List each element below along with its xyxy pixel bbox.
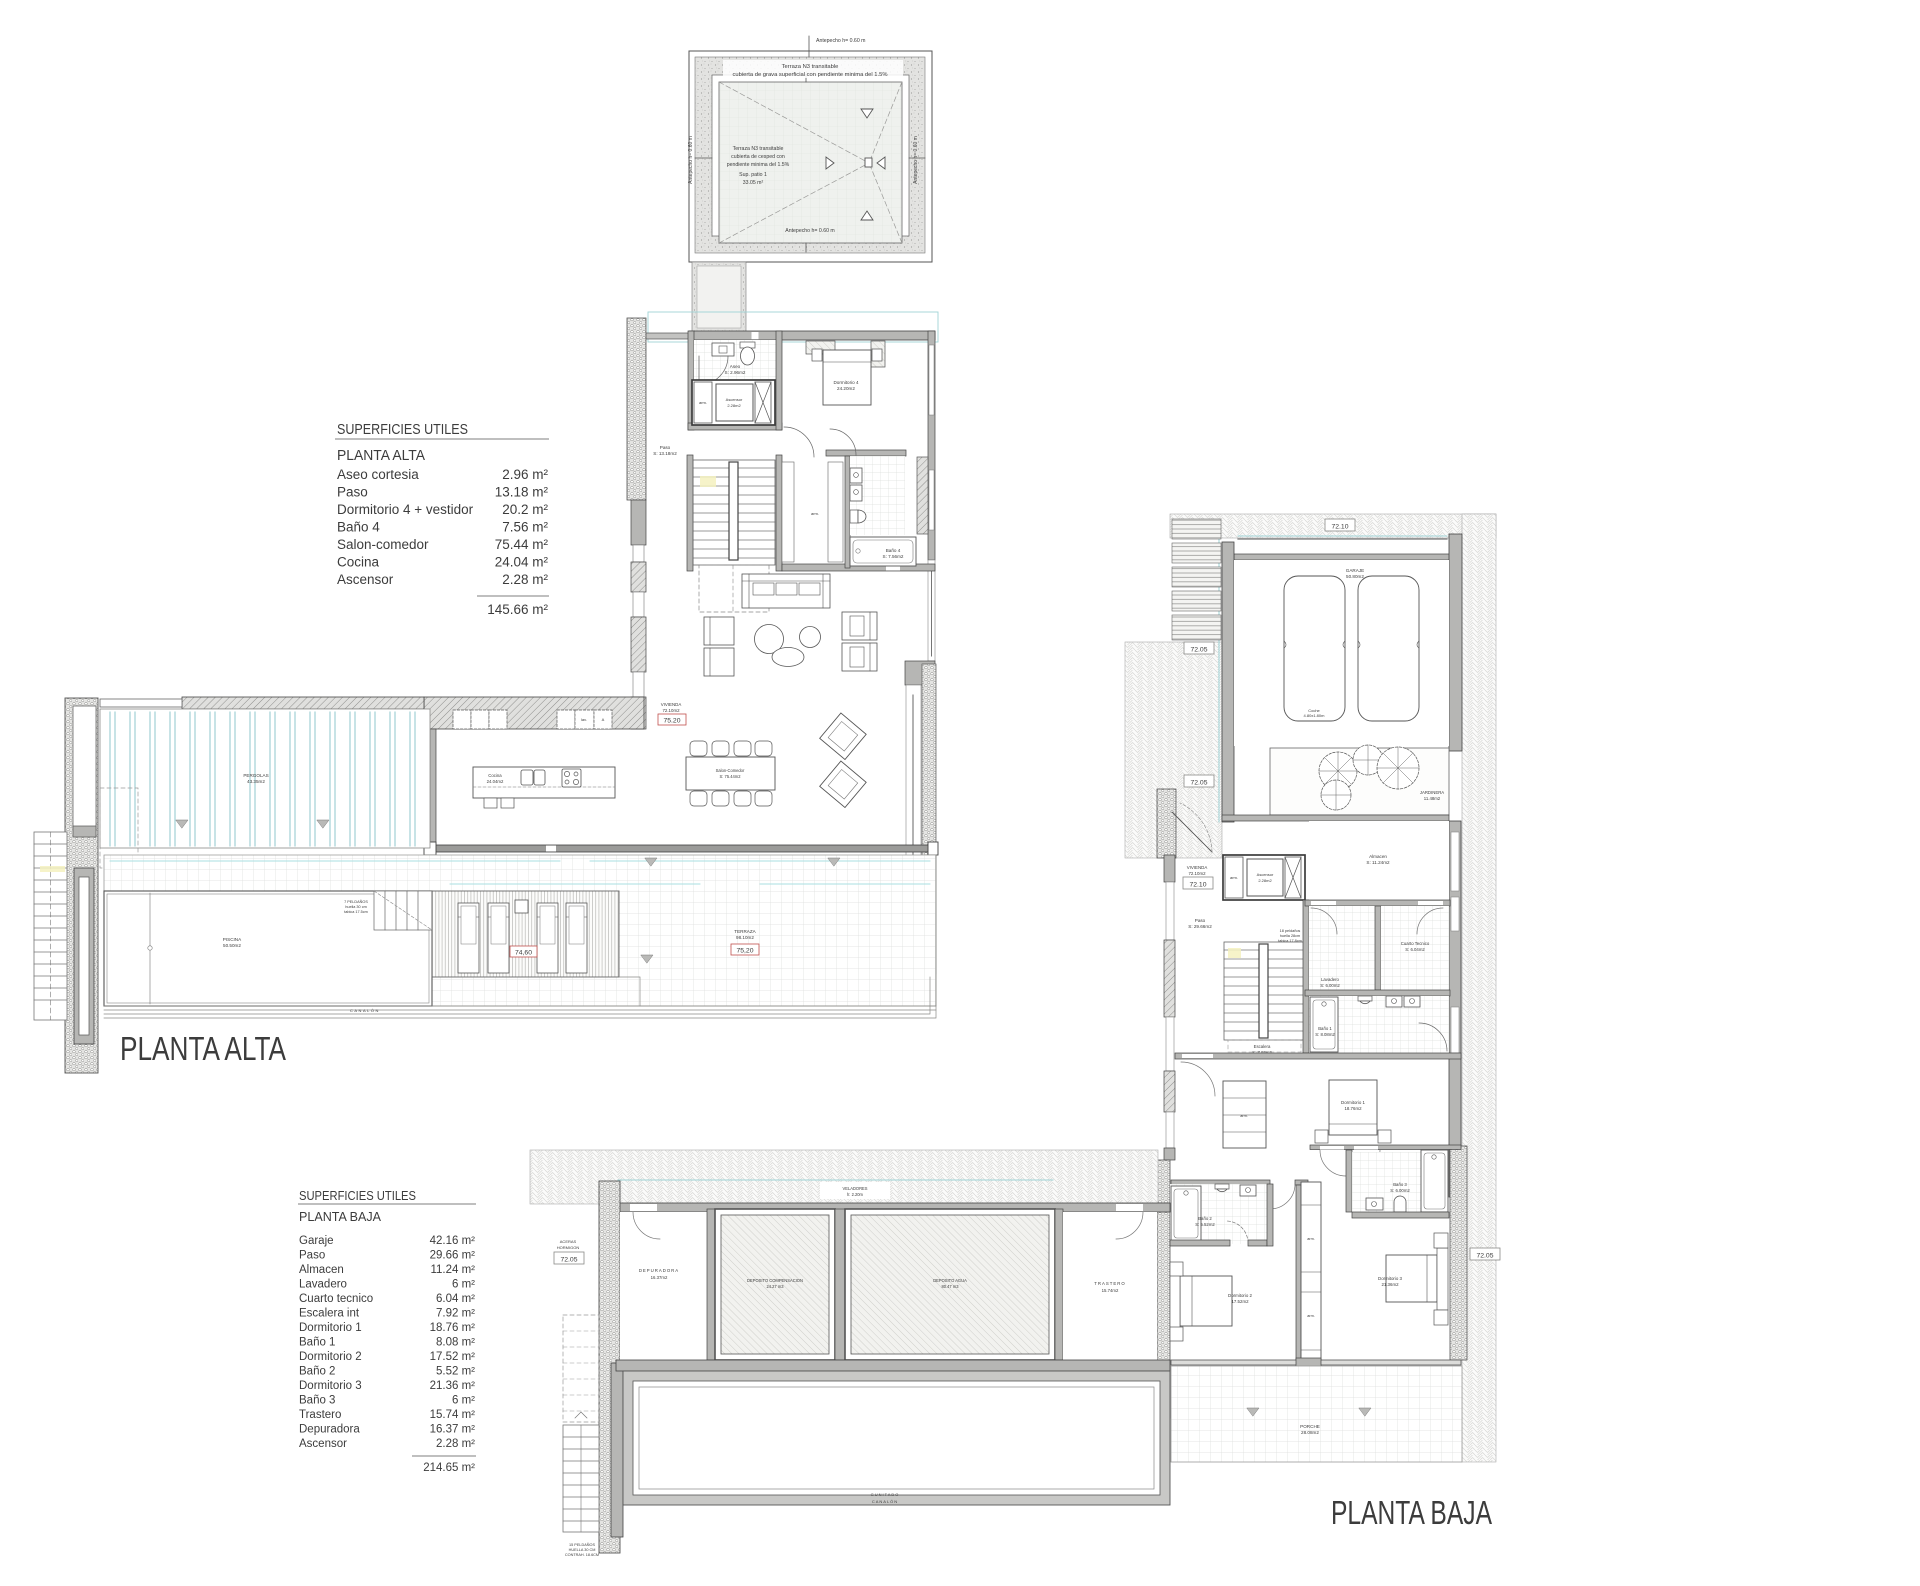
- svg-text:75,20: 75,20: [736, 948, 753, 955]
- svg-text:Baño 3: Baño 3: [1393, 1182, 1407, 1187]
- svg-text:Dormitorio 3: Dormitorio 3: [299, 1380, 362, 1392]
- svg-text:29.66 m²: 29.66 m²: [430, 1250, 476, 1262]
- svg-text:Cuarto tecnico: Cuarto tecnico: [299, 1293, 373, 1305]
- svg-text:15 PELDAÑOS: 15 PELDAÑOS: [569, 1542, 595, 1547]
- svg-text:DEPOSITO COMPENSACION: DEPOSITO COMPENSACION: [747, 1278, 803, 1283]
- svg-text:80.47 m3: 80.47 m3: [941, 1284, 959, 1289]
- svg-text:TERRAZA: TERRAZA: [734, 929, 756, 934]
- svg-text:18.76m2: 18.76m2: [1344, 1106, 1362, 1111]
- svg-text:72.05: 72.05: [1476, 1253, 1493, 1260]
- svg-text:Dormitorio 3: Dormitorio 3: [1378, 1276, 1402, 1281]
- svg-text:2.28m2: 2.28m2: [1258, 878, 1272, 883]
- svg-text:DEPOSITO AGUA: DEPOSITO AGUA: [933, 1278, 967, 1283]
- svg-text:15.74 m²: 15.74 m²: [430, 1409, 476, 1421]
- svg-text:Antepecho h= 0.60 m: Antepecho h= 0.60 m: [913, 136, 919, 184]
- svg-text:4.80x1.80m: 4.80x1.80m: [1304, 713, 1326, 718]
- svg-text:Garaje: Garaje: [299, 1235, 334, 1247]
- svg-text:Cocina: Cocina: [488, 773, 502, 778]
- svg-text:PLANTA ALTA: PLANTA ALTA: [120, 1030, 286, 1067]
- svg-text:Terraza N3 transitable: Terraza N3 transitable: [782, 64, 839, 70]
- svg-text:S: 6.00m2: S: 6.00m2: [1390, 1188, 1410, 1193]
- svg-text:15.74m2: 15.74m2: [1102, 1288, 1119, 1293]
- svg-text:18 peldaños: 18 peldaños: [1280, 929, 1301, 933]
- svg-text:Baño 4: Baño 4: [886, 548, 901, 553]
- svg-text:Antepecho h= 0.60 m: Antepecho h= 0.60 m: [785, 228, 834, 234]
- svg-text:17.52 m²: 17.52 m²: [430, 1351, 476, 1363]
- svg-text:2.28m2: 2.28m2: [727, 403, 741, 408]
- svg-text:2.28 m²: 2.28 m²: [502, 572, 548, 587]
- svg-text:Almacen: Almacen: [1369, 854, 1387, 859]
- svg-text:Trastero: Trastero: [299, 1409, 341, 1421]
- svg-text:SUPERFICIES UTILES: SUPERFICIES UTILES: [337, 422, 468, 438]
- svg-text:Cocina: Cocina: [337, 555, 380, 570]
- svg-text:20.2 m²: 20.2 m²: [502, 502, 548, 517]
- svg-text:Lavadero: Lavadero: [1321, 977, 1340, 982]
- svg-text:VELADORES: VELADORES: [842, 1186, 867, 1191]
- svg-text:28.08m2: 28.08m2: [1301, 1430, 1319, 1435]
- svg-text:Dormitorio 4: Dormitorio 4: [833, 380, 858, 385]
- svg-text:72.05: 72.05: [1190, 780, 1207, 787]
- svg-text:Escalera int: Escalera int: [299, 1308, 360, 1320]
- svg-text:lav.: lav.: [581, 717, 587, 722]
- svg-text:8.08 m²: 8.08 m²: [436, 1337, 475, 1349]
- svg-text:Escalera: Escalera: [1254, 1044, 1271, 1049]
- svg-text:Ascensor: Ascensor: [726, 397, 743, 402]
- svg-text:21.36 m²: 21.36 m²: [430, 1380, 476, 1392]
- svg-text:6.04 m²: 6.04 m²: [436, 1293, 475, 1305]
- svg-text:18.76 m²: 18.76 m²: [430, 1322, 476, 1334]
- svg-text:Sup. patio 1: Sup. patio 1: [739, 172, 767, 178]
- svg-text:PORCHE: PORCHE: [1300, 1424, 1320, 1429]
- svg-text:pendiente minima del 1.5%: pendiente minima del 1.5%: [727, 162, 790, 168]
- svg-text:ACERAS: ACERAS: [560, 1239, 577, 1244]
- svg-text:HUELLA 30 CM: HUELLA 30 CM: [569, 1548, 596, 1552]
- svg-text:2.96 m²: 2.96 m²: [502, 467, 548, 482]
- svg-text:arm.: arm.: [1307, 1237, 1315, 1241]
- svg-text:2.28 m²: 2.28 m²: [436, 1438, 475, 1450]
- svg-text:74,60: 74,60: [515, 950, 532, 957]
- svg-text:arm.: arm.: [811, 511, 819, 516]
- svg-text:50.50m2: 50.50m2: [223, 943, 241, 948]
- svg-text:17.52m2: 17.52m2: [1231, 1299, 1249, 1304]
- svg-text:SUPERFICIES UTILES: SUPERFICIES UTILES: [299, 1189, 416, 1203]
- svg-text:24.04 m²: 24.04 m²: [495, 555, 549, 570]
- svg-text:6 m²: 6 m²: [452, 1395, 475, 1407]
- svg-text:Baño 1: Baño 1: [299, 1337, 335, 1349]
- svg-text:Dormitorio 4 + vestidor: Dormitorio 4 + vestidor: [337, 502, 474, 517]
- svg-text:cubierta de cesped con: cubierta de cesped con: [731, 154, 785, 160]
- svg-text:72.10m2: 72.10m2: [662, 708, 680, 713]
- svg-text:145.66 m²: 145.66 m²: [487, 602, 548, 617]
- svg-text:Paso: Paso: [660, 445, 671, 450]
- svg-text:S: 11.24m2: S: 11.24m2: [1366, 860, 1390, 865]
- svg-text:PISCINA: PISCINA: [223, 937, 242, 942]
- svg-text:72.10m2: 72.10m2: [1188, 871, 1206, 876]
- svg-text:Salon-comedor: Salon-comedor: [337, 537, 429, 552]
- svg-text:16.37 m²: 16.37 m²: [430, 1424, 476, 1436]
- svg-text:S: 6.04m2: S: 6.04m2: [1405, 947, 1425, 952]
- svg-text:VIVIENDA: VIVIENDA: [1187, 865, 1208, 870]
- svg-text:S: 2.96m2: S: 2.96m2: [725, 370, 746, 375]
- svg-text:S: 75.44m2: S: 75.44m2: [720, 774, 742, 779]
- svg-text:A: A: [602, 717, 605, 722]
- svg-text:Dormitorio 2: Dormitorio 2: [299, 1351, 362, 1363]
- svg-text:Dormitorio 1: Dormitorio 1: [299, 1322, 362, 1334]
- svg-text:Cuarto Tecnico: Cuarto Tecnico: [1401, 941, 1430, 946]
- svg-text:S: 5.52m2: S: 5.52m2: [1195, 1222, 1215, 1227]
- svg-text:DEPURADORA: DEPURADORA: [639, 1268, 679, 1273]
- svg-text:Baño 1: Baño 1: [1318, 1026, 1332, 1031]
- svg-text:arm.: arm.: [1230, 875, 1238, 880]
- svg-text:HORMIGON: HORMIGON: [557, 1245, 580, 1250]
- svg-text:Dormitorio 1: Dormitorio 1: [1341, 1100, 1365, 1105]
- svg-text:Baño 3: Baño 3: [299, 1395, 335, 1407]
- svg-text:tabica 17.8cm: tabica 17.8cm: [1278, 939, 1302, 943]
- svg-text:Paso: Paso: [337, 485, 368, 500]
- svg-text:Ascensor: Ascensor: [1257, 872, 1274, 877]
- svg-text:CANALÓN: CANALÓN: [350, 1008, 380, 1013]
- svg-text:Baño 4: Baño 4: [337, 520, 380, 535]
- svg-text:43.35m2: 43.35m2: [247, 779, 265, 784]
- svg-text:Almacen: Almacen: [299, 1264, 344, 1276]
- svg-text:CONTRAH. 18.6CM: CONTRAH. 18.6CM: [565, 1553, 599, 1557]
- svg-text:24.27 m3: 24.27 m3: [766, 1284, 784, 1289]
- svg-text:Paso: Paso: [1195, 918, 1206, 923]
- svg-text:cubierta de grava superficial: cubierta de grava superficial con pendie…: [733, 72, 888, 78]
- svg-text:arm.: arm.: [1240, 1114, 1248, 1118]
- svg-text:Dormitorio 2: Dormitorio 2: [1228, 1293, 1252, 1298]
- svg-text:GARAJE: GARAJE: [1346, 568, 1364, 573]
- svg-text:72.05: 72.05: [560, 1257, 577, 1264]
- svg-text:GUNITADO: GUNITADO: [871, 1492, 900, 1497]
- svg-text:h: 2.20m: h: 2.20m: [847, 1192, 864, 1197]
- svg-text:33.05 m²: 33.05 m²: [743, 180, 764, 186]
- svg-text:7.92 m²: 7.92 m²: [436, 1308, 475, 1320]
- svg-text:42.16 m²: 42.16 m²: [430, 1235, 476, 1247]
- svg-text:7.56 m²: 7.56 m²: [502, 520, 548, 535]
- svg-text:11.24 m²: 11.24 m²: [430, 1264, 475, 1276]
- svg-text:72.10: 72.10: [1331, 524, 1348, 531]
- svg-text:7 PELDAÑOS: 7 PELDAÑOS: [344, 899, 368, 904]
- svg-text:24.04m2: 24.04m2: [487, 779, 504, 784]
- svg-text:Antepecho h= 0.60 m: Antepecho h= 0.60 m: [688, 136, 694, 184]
- svg-text:PLANTA BAJA: PLANTA BAJA: [1331, 1494, 1492, 1531]
- svg-text:tabica 17.5cm: tabica 17.5cm: [344, 910, 368, 914]
- svg-text:24.20m2: 24.20m2: [837, 386, 855, 391]
- svg-text:Aseo: Aseo: [730, 364, 741, 369]
- svg-text:PLANTA BAJA: PLANTA BAJA: [299, 1210, 382, 1224]
- svg-text:98.10m2: 98.10m2: [736, 935, 754, 940]
- svg-text:Antepecho h= 0.60 m: Antepecho h= 0.60 m: [816, 38, 865, 44]
- svg-text:6 m²: 6 m²: [452, 1279, 475, 1291]
- svg-text:72.05: 72.05: [1190, 647, 1207, 654]
- svg-text:S: 13.18m2: S: 13.18m2: [653, 451, 677, 456]
- svg-text:Salon-Comedor: Salon-Comedor: [716, 768, 745, 773]
- svg-text:huella 28cm: huella 28cm: [1280, 934, 1300, 938]
- svg-text:Ascensor: Ascensor: [299, 1438, 347, 1450]
- svg-text:S: 29.66m2: S: 29.66m2: [1188, 924, 1212, 929]
- svg-text:Baño 2: Baño 2: [1198, 1216, 1212, 1221]
- svg-text:Depuradora: Depuradora: [299, 1424, 360, 1436]
- svg-text:huella 30 cm: huella 30 cm: [345, 905, 367, 909]
- svg-text:11.48m2: 11.48m2: [1424, 796, 1441, 801]
- svg-text:Ascensor: Ascensor: [337, 572, 394, 587]
- svg-text:S: 6.00m2: S: 6.00m2: [1320, 983, 1340, 988]
- svg-text:Lavadero: Lavadero: [299, 1279, 347, 1291]
- svg-text:S: 7.56m2: S: 7.56m2: [883, 554, 904, 559]
- svg-text:S: 8.08m2: S: 8.08m2: [1315, 1032, 1335, 1037]
- svg-text:Terraza N3 transitable: Terraza N3 transitable: [733, 146, 784, 152]
- svg-text:Baño 2: Baño 2: [299, 1366, 335, 1378]
- svg-text:21.36m2: 21.36m2: [1381, 1282, 1399, 1287]
- svg-text:16.37m2: 16.37m2: [651, 1275, 668, 1280]
- svg-text:75.20: 75.20: [663, 718, 680, 725]
- svg-text:arm.: arm.: [1307, 1314, 1315, 1318]
- svg-text:VIVIENDA: VIVIENDA: [661, 702, 682, 707]
- svg-text:50.80m2: 50.80m2: [1346, 574, 1364, 579]
- svg-text:214.65 m²: 214.65 m²: [423, 1462, 475, 1474]
- svg-text:5.52 m²: 5.52 m²: [436, 1366, 475, 1378]
- svg-text:TRASTERO: TRASTERO: [1094, 1281, 1125, 1286]
- svg-text:13.18 m²: 13.18 m²: [495, 485, 549, 500]
- svg-text:arm.: arm.: [699, 400, 707, 405]
- svg-text:Aseo cortesia: Aseo cortesia: [337, 467, 419, 482]
- svg-text:PERGOLAS: PERGOLAS: [243, 773, 268, 778]
- svg-text:PLANTA ALTA: PLANTA ALTA: [337, 448, 425, 464]
- svg-text:72.10: 72.10: [1189, 882, 1206, 889]
- svg-text:75.44 m²: 75.44 m²: [495, 537, 549, 552]
- svg-text:CANALÓN: CANALÓN: [872, 1499, 898, 1504]
- svg-text:Paso: Paso: [299, 1250, 325, 1262]
- svg-text:JARDINERA: JARDINERA: [1420, 790, 1444, 795]
